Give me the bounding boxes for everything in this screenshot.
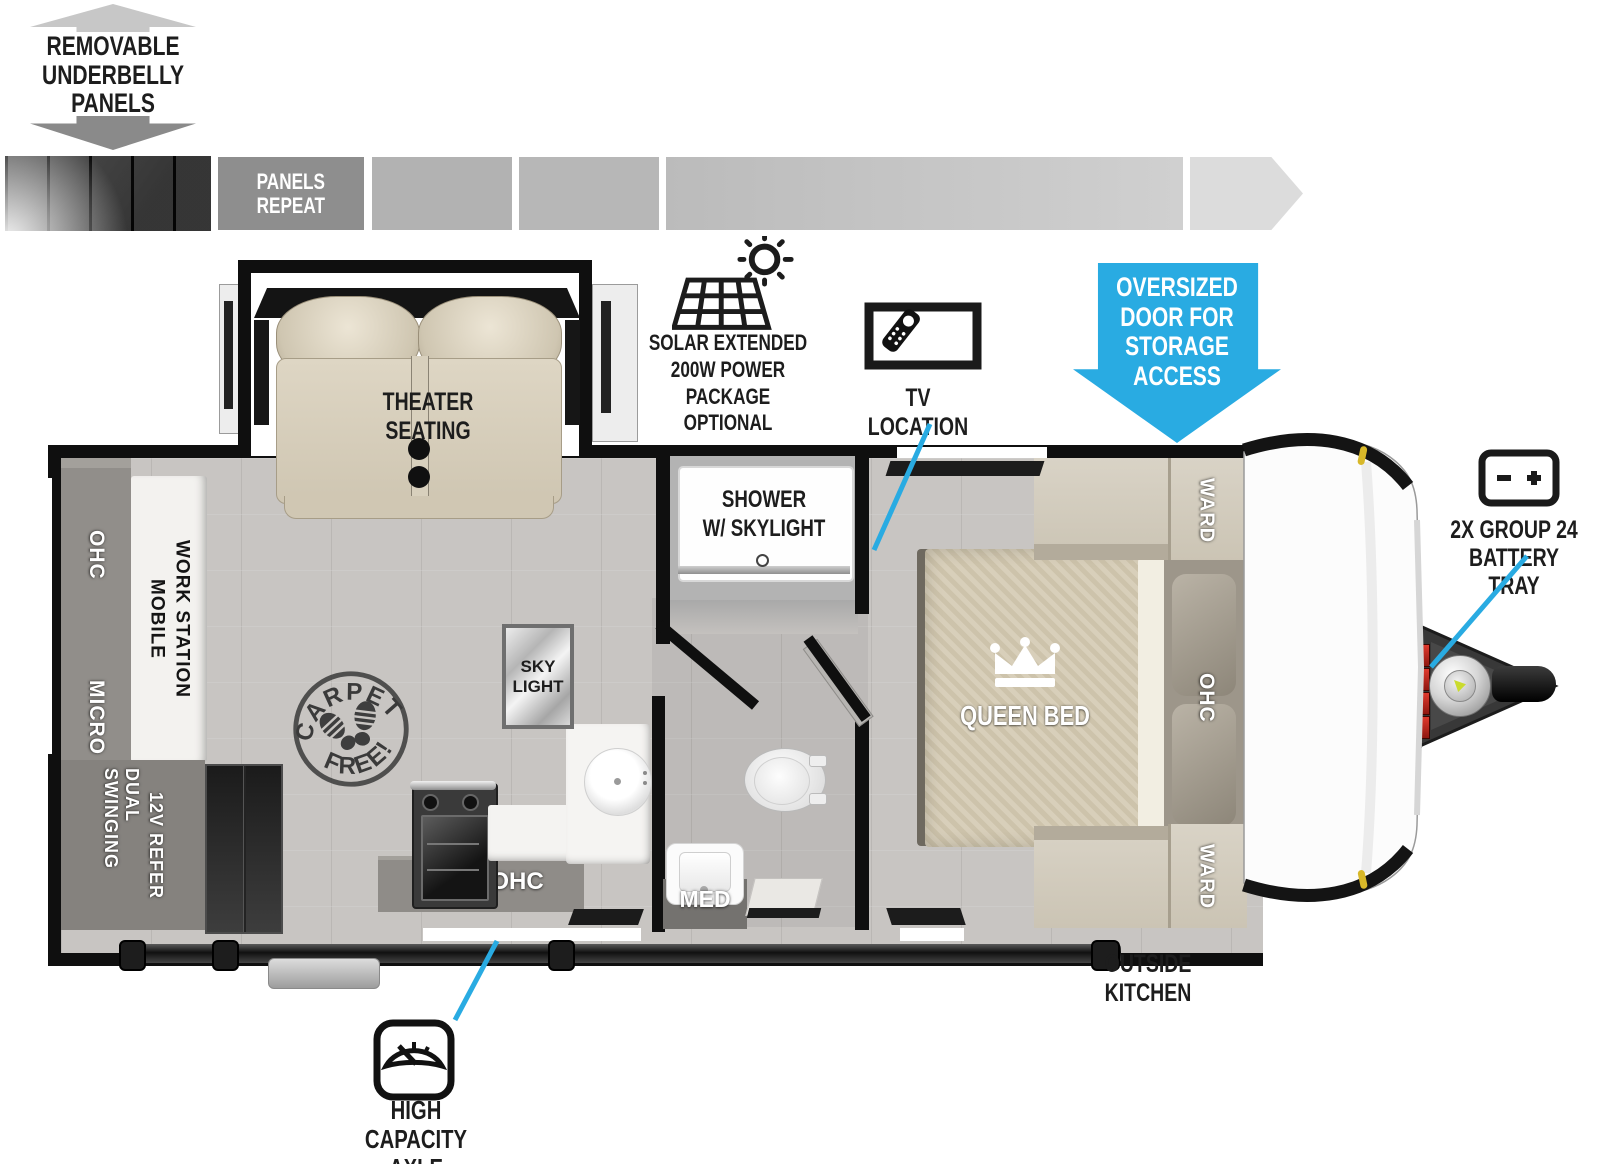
bed-pillow-band	[1138, 556, 1165, 840]
slideout-window-left	[254, 320, 269, 425]
bedroom-partition-upper	[855, 452, 869, 614]
rv-floorplan-diagram: REMOVABLE UNDERBELLY PANELS PANELS REPEA…	[0, 0, 1600, 1164]
skylight: SKY LIGHT	[502, 624, 574, 729]
underbelly-label: REMOVABLE UNDERBELLY PANELS	[31, 32, 195, 118]
ohc-left: OHC	[61, 500, 131, 610]
scale-icon	[372, 1018, 456, 1102]
panel-segment	[519, 157, 659, 230]
cup-holder	[408, 466, 430, 488]
mobile-work-station-label-line1: MOBILE	[146, 579, 168, 659]
kitchen-counter	[488, 805, 572, 861]
outside-kitchen-label: OUTSIDE KITCHEN	[1100, 950, 1197, 1008]
panels-repeat-label: PANELS REPEAT	[257, 170, 325, 216]
bedroom-partition-lower	[855, 714, 869, 930]
propane-tank	[1429, 655, 1491, 717]
solar-panel-icon	[672, 236, 800, 336]
theater-seating-label: THEATER SEATING	[342, 388, 514, 446]
panels-repeat-box: PANELS REPEAT	[218, 157, 364, 230]
entry-door-gap	[423, 928, 641, 941]
kitchen-sink	[584, 748, 652, 816]
shower-label: SHOWER W/ SKYLIGHT	[698, 486, 829, 544]
solar-label: SOLAR EXTENDED 200W POWER PACKAGE OPTION…	[641, 330, 816, 437]
panel-segment	[666, 157, 1183, 230]
shower-threshold	[670, 600, 858, 634]
rear-window	[41, 478, 52, 754]
bedroom-ohc-label: OHC	[1194, 673, 1218, 723]
underbelly-up-arrow-icon	[30, 4, 196, 32]
entry-door-step	[568, 909, 644, 925]
wardrobe-top-label: WARD	[1195, 478, 1218, 543]
underbelly-panel-photo	[5, 156, 211, 231]
wardrobe-top-labelwrap: WARD	[1178, 464, 1234, 558]
slideout-window-right	[565, 320, 580, 425]
refer-label-line2: 12V REFER	[145, 792, 166, 899]
tv-icon	[864, 302, 982, 370]
axle-label: HIGH CAPACITY AXLE	[340, 1096, 493, 1164]
microwave: MICRO	[61, 662, 131, 772]
tv-location-label: TV LOCATION	[854, 384, 982, 442]
rail-cap	[119, 940, 146, 971]
bedroom-window-bottom	[900, 928, 964, 941]
oversized-door-arrow: OVERSIZED DOOR FOR STORAGE ACCESS	[1073, 263, 1281, 443]
panel-arrow-segment	[1190, 157, 1303, 230]
med-label: MED	[663, 886, 747, 913]
hitch-coupler	[1492, 666, 1556, 702]
underbelly-down-arrow-icon	[30, 116, 196, 150]
battery-tray-label: 2X GROUP 24 BATTERY TRAY	[1447, 516, 1581, 600]
bedroom-window-top	[897, 447, 1047, 458]
slideout-wing-right	[592, 284, 638, 442]
refer: DUAL SWINGING 12V REFER	[63, 768, 203, 924]
oversized-door-label: OVERSIZED DOOR FOR STORAGE ACCESS	[1109, 273, 1245, 392]
rail-cap	[212, 940, 239, 971]
bedroom-ohc-labelwrap: OHC	[1182, 650, 1230, 746]
panel-segment	[372, 157, 512, 230]
wardrobe-bottom-label: WARD	[1195, 844, 1218, 909]
skylight-label: SKY LIGHT	[513, 657, 564, 696]
bedroom-window-bottom-shade	[886, 908, 966, 925]
rail-cap	[548, 940, 575, 971]
mobile-work-station: MOBILE WORK STATION	[131, 498, 207, 740]
refer-label-line1: DUAL SWINGING	[100, 768, 142, 924]
ohc-left-label: OHC	[84, 530, 108, 580]
mobile-work-station-label-line2: WORK STATION	[171, 540, 193, 698]
micro-label: MICRO	[84, 680, 108, 755]
bedside-cabinet-bottom	[1034, 826, 1172, 928]
queen-bed-label: QUEEN BED	[955, 700, 1095, 732]
bedside-cabinet-top	[1034, 458, 1172, 560]
battery-icon	[1477, 447, 1561, 509]
theater-seat-foot	[284, 496, 554, 519]
shower-left-wall	[656, 452, 670, 644]
bedroom-window-top-shade	[886, 461, 1045, 476]
queen-bed-mattress	[925, 549, 1157, 847]
front-cap	[1238, 430, 1428, 905]
toilet	[744, 748, 826, 812]
stove	[412, 783, 498, 909]
vanity-base	[747, 908, 821, 918]
entry-step	[268, 958, 380, 989]
refrigerator-doors	[205, 764, 283, 934]
wardrobe-bottom-labelwrap: WARD	[1178, 830, 1234, 924]
crown-icon	[985, 636, 1065, 694]
